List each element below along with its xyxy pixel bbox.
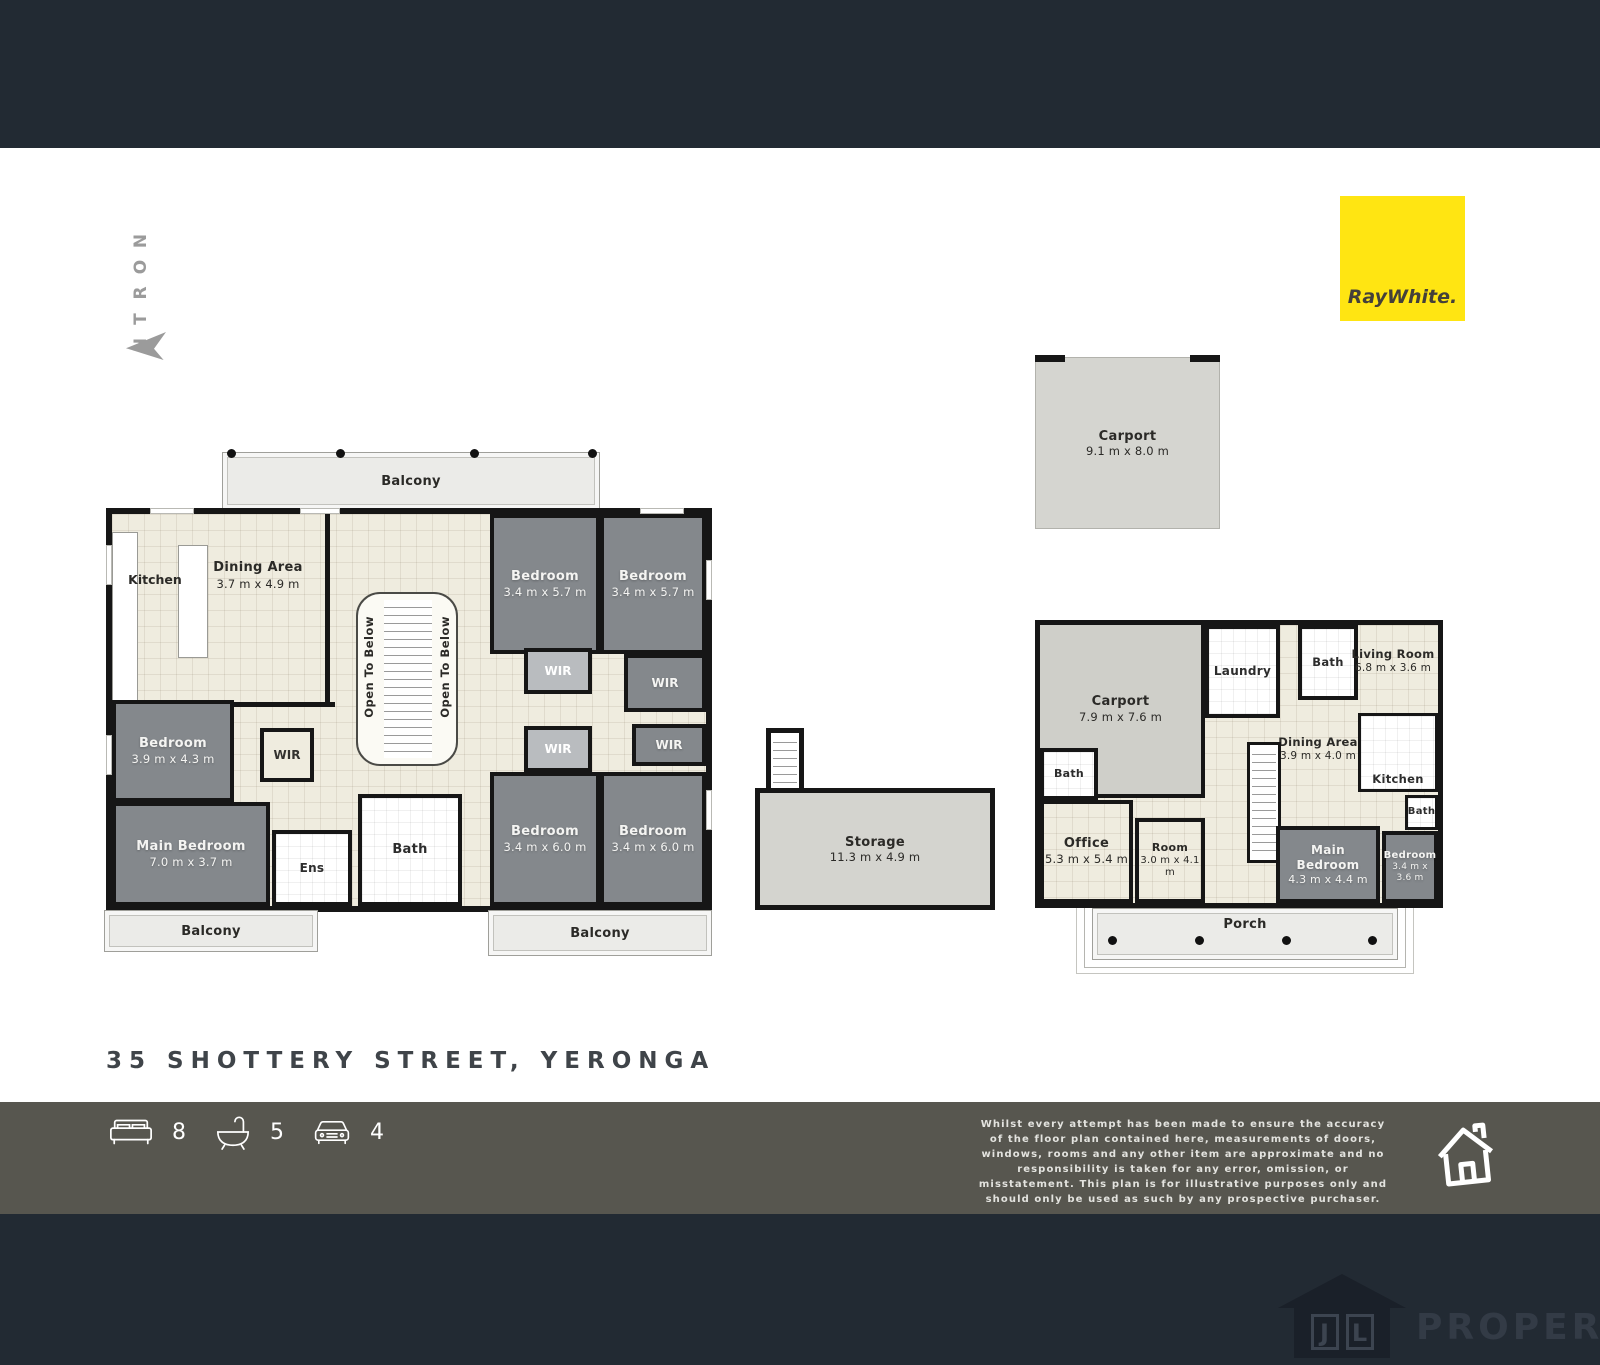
room-dims: 6.8 m x 3.6 m	[1348, 662, 1438, 676]
room-dims: 3.0 m x 4.1 m	[1139, 855, 1201, 880]
post-dot	[1368, 936, 1377, 945]
jl-house-body: J L	[1294, 1306, 1390, 1358]
room-name: Carport	[1092, 694, 1150, 710]
room-room: Room 3.0 m x 4.1 m	[1135, 818, 1205, 903]
post-dot	[470, 449, 479, 458]
upper-floor-plan: Kitchen Dining Area 3.7 m x 4.9 m Open T…	[106, 508, 712, 912]
post-dot	[1195, 936, 1204, 945]
porch: Porch	[1092, 908, 1398, 960]
room-name: Living Room	[1348, 647, 1438, 662]
room-dims: 3.9 m x 4.0 m	[1272, 750, 1364, 764]
wir-label: WIR	[656, 738, 683, 753]
post-dot	[227, 449, 236, 458]
room-office: Office 5.3 m x 5.4 m	[1040, 800, 1133, 903]
open-to-below-label: Open To Below	[362, 616, 376, 718]
balcony-bottom-left: Balcony	[104, 910, 318, 952]
room-carport-detached: Carport 9.1 m x 8.0 m	[1035, 357, 1220, 529]
watermark-letter-l: L	[1346, 1314, 1374, 1350]
room-ens: Ens	[272, 830, 352, 906]
post-dot	[1108, 936, 1117, 945]
room-wir: WIR	[524, 648, 592, 694]
room-wir: WIR	[260, 728, 314, 782]
room-dims: 3.9 m x 4.3 m	[131, 752, 214, 766]
raywhite-logo: RayWhite.	[1340, 196, 1465, 321]
room-bedroom: Bedroom 3.4 m x 5.7 m	[600, 514, 706, 654]
north-letter: T	[128, 306, 154, 332]
window-marker	[640, 508, 684, 514]
wall-segment	[1190, 355, 1220, 362]
balcony-label: Balcony	[570, 926, 630, 941]
room-dims: 3.7 m x 4.9 m	[198, 577, 318, 592]
post-dot	[336, 449, 345, 458]
jl-property-watermark: J L PROPERTY	[1278, 1274, 1600, 1358]
bed-icon	[108, 1115, 154, 1149]
balcony-label: Balcony	[381, 474, 441, 489]
room-name: Main Bedroom	[136, 839, 245, 855]
car-icon	[312, 1116, 352, 1148]
room-kitchen-ground: Kitchen	[1358, 713, 1438, 792]
north-letter: R	[128, 280, 154, 306]
room-name: Main Bedroom	[1280, 843, 1376, 873]
room-name: Carport	[1099, 429, 1157, 444]
room-name: Bath	[392, 842, 427, 858]
room-bedroom-ground: Bedroom 3.4 m x 3.6 m	[1382, 831, 1438, 903]
stairwell: Open To Below Open To Below	[356, 592, 458, 766]
wir-label: WIR	[652, 676, 679, 691]
room-dims: 11.3 m x 4.9 m	[830, 850, 921, 864]
room-name: Ens	[300, 861, 325, 876]
baths-count: 5	[270, 1120, 284, 1145]
room-dims: 7.0 m x 3.7 m	[149, 855, 232, 869]
post-dot	[588, 449, 597, 458]
balcony-top: Balcony	[222, 452, 600, 510]
house-icon	[1432, 1120, 1500, 1198]
cars-count: 4	[370, 1120, 384, 1145]
room-bath: Bath	[358, 794, 462, 906]
room-main-bedroom-ground: Main Bedroom 4.3 m x 4.4 m	[1276, 826, 1380, 903]
room-dims: 3.4 m x 6.0 m	[503, 840, 586, 854]
jl-house-icon: J L	[1278, 1274, 1406, 1358]
room-dims: 5.3 m x 5.4 m	[1045, 852, 1128, 866]
room-wir: WIR	[524, 726, 592, 772]
post-dot	[1282, 936, 1291, 945]
wall-segment	[1035, 355, 1065, 362]
storage-stairs	[766, 728, 804, 790]
room-dims: 7.9 m x 7.6 m	[1079, 710, 1162, 724]
disclaimer-text: Whilst every attempt has been made to en…	[978, 1117, 1388, 1207]
room-dims: 3.4 m x 5.7 m	[611, 585, 694, 599]
room-laundry: Laundry	[1205, 625, 1280, 718]
room-bath: Bath	[1405, 795, 1438, 830]
room-name: Dining Area	[1272, 735, 1364, 750]
wall-segment	[325, 514, 330, 706]
room-dims: 3.4 m x 5.7 m	[503, 585, 586, 599]
room-dims: 4.3 m x 4.4 m	[1288, 873, 1368, 887]
room-dining-ground: Dining Area 3.9 m x 4.0 m	[1272, 735, 1364, 764]
room-name: Bath	[1054, 767, 1084, 781]
room-living: Living Room 6.8 m x 3.6 m	[1348, 647, 1438, 676]
raywhite-logo-text: RayWhite.	[1348, 286, 1457, 308]
open-to-below-label: Open To Below	[438, 616, 452, 718]
room-name: Dining Area	[198, 560, 318, 577]
stair-treads	[773, 735, 797, 788]
room-name: Storage	[845, 835, 905, 850]
room-bath: Bath	[1040, 748, 1098, 800]
watermark-property-text: PROPERTY	[1416, 1307, 1600, 1348]
room-name: Bedroom	[619, 824, 687, 840]
room-wir: WIR	[632, 724, 706, 766]
room-dims: 3.4 m x 3.6 m	[1386, 862, 1434, 885]
room-name: Office	[1064, 836, 1109, 852]
window-marker	[106, 735, 112, 775]
bath-icon	[214, 1114, 252, 1150]
ground-floor-plan: Carport 7.9 m x 7.6 m Laundry Bath Livin…	[1035, 620, 1443, 908]
stats-row: 8 5 4	[108, 1114, 394, 1150]
room-name: Bedroom	[1384, 850, 1437, 863]
room-name: Bedroom	[619, 569, 687, 585]
balcony-bottom-right: Balcony	[488, 910, 712, 956]
window-marker	[150, 508, 194, 514]
window-marker	[106, 545, 112, 585]
window-marker	[706, 790, 712, 830]
window-marker	[300, 508, 340, 514]
north-letter: O	[128, 254, 154, 280]
room-kitchen-label: Kitchen	[120, 572, 190, 588]
room-name: Kitchen	[1372, 772, 1423, 786]
jl-house-roof	[1278, 1274, 1406, 1308]
room-bedroom: Bedroom 3.9 m x 4.3 m	[112, 700, 234, 802]
room-dims: 3.4 m x 6.0 m	[611, 840, 694, 854]
room-name: Bedroom	[511, 569, 579, 585]
room-name: Bedroom	[511, 824, 579, 840]
watermark-letter-j: J	[1311, 1314, 1339, 1350]
room-bedroom: Bedroom 3.4 m x 5.7 m	[490, 514, 600, 654]
room-name: Bath	[1312, 655, 1343, 669]
room-wir: WIR	[624, 654, 706, 712]
room-dims: 9.1 m x 8.0 m	[1086, 444, 1169, 458]
page-title: 35 SHOTTERY STREET, YERONGA	[106, 1048, 715, 1074]
wir-label: WIR	[545, 742, 572, 757]
window-marker	[706, 560, 712, 600]
room-name: Bath	[1408, 806, 1435, 819]
beds-count: 8	[172, 1120, 186, 1145]
stair-treads	[1252, 747, 1276, 858]
wir-label: WIR	[545, 664, 572, 679]
wir-label: WIR	[274, 748, 301, 763]
room-name: Room	[1152, 841, 1188, 855]
balcony-label: Balcony	[181, 924, 241, 939]
header-band	[0, 0, 1600, 148]
room-name: Laundry	[1214, 664, 1271, 679]
room-bedroom: Bedroom 3.4 m x 6.0 m	[600, 772, 706, 906]
room-name: Bedroom	[139, 736, 207, 752]
porch-label: Porch	[1223, 917, 1266, 932]
floorplan-page: N O R T H RayWhite. Carport 9.1 m x 8.0 …	[0, 0, 1600, 1365]
room-storage: Storage 11.3 m x 4.9 m	[755, 788, 995, 910]
room-main-bedroom: Main Bedroom 7.0 m x 3.7 m	[112, 802, 270, 906]
stair-treads	[384, 600, 432, 758]
room-bedroom: Bedroom 3.4 m x 6.0 m	[490, 772, 600, 906]
north-letter: N	[128, 228, 154, 254]
kitchen-counter	[112, 532, 138, 704]
room-dining-upper: Dining Area 3.7 m x 4.9 m	[198, 560, 318, 592]
